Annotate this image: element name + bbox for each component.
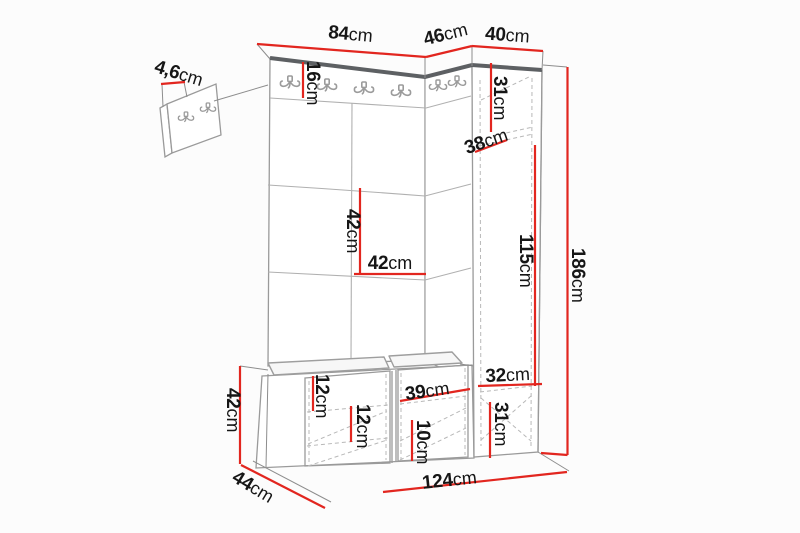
dim-label-cabinet-width: 40cm (484, 23, 530, 47)
cabinet-side-face (425, 65, 474, 385)
dim-line-cabinet-width (472, 46, 543, 51)
dim-label-panel-width: 84cm (327, 22, 373, 47)
dim-label-total-width: 124cm (421, 467, 478, 494)
dim-label-tile-height: 42cm (342, 209, 363, 254)
detail-leader-line (214, 85, 268, 101)
wall-panel-detail (160, 84, 268, 157)
dim-label-hook-rail-height: 16cm (302, 61, 323, 106)
dim-label-cabinet-hanging-height: 115cm (515, 234, 536, 288)
furniture-diagram-svg: 84cm 46cm 40cm 4,6cm 16cm 31cm 38cm 115c… (0, 0, 800, 533)
dim-label-bench-shelf-gap-lower: 12cm (352, 404, 373, 449)
dim-label-cabinet-inner-width: 32cm (485, 364, 531, 387)
dim-label-cabinet-top-compartment: 31cm (489, 76, 510, 121)
dim-label-bench-height: 42cm (222, 388, 243, 433)
dim-label-wall-panel-thickness: 4,6cm (152, 56, 205, 91)
dim-label-total-height: 186cm (567, 248, 588, 303)
dim-label-bench-shelf-gap-upper: 12cm (311, 374, 332, 419)
dim-label-bench-compartment-height: 10cm (412, 420, 433, 465)
dimension-drawing: 84cm 46cm 40cm 4,6cm 16cm 31cm 38cm 115c… (0, 0, 800, 533)
dim-line-panel-width (257, 44, 426, 57)
dim-label-cabinet-depth: 46cm (422, 19, 470, 50)
dim-label-bench-depth: 44cm (228, 467, 277, 508)
main-panel (268, 58, 474, 385)
dim-connector-total-height (541, 453, 568, 455)
dim-label-tile-width: 42cm (368, 253, 413, 274)
dim-label-cabinet-bottom-compartment: 31cm (490, 402, 511, 447)
